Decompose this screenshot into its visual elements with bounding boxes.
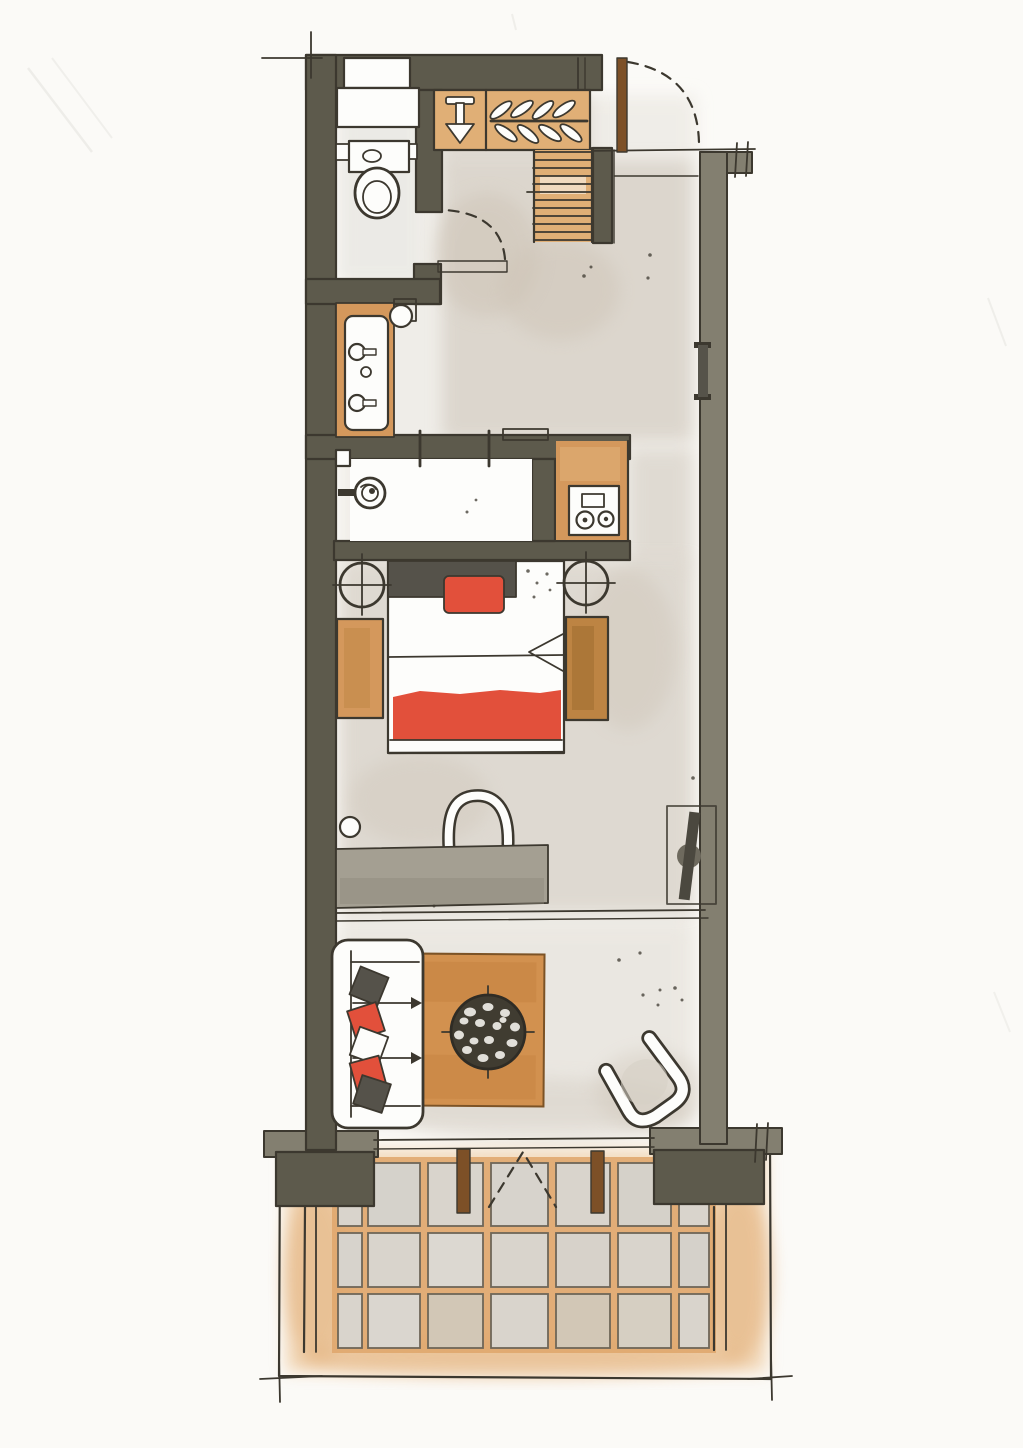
toilet-bowl [355,168,399,218]
shelf-unit [344,58,410,88]
terrace-side-wall-right [654,1150,764,1204]
wc-south-wall [306,279,440,304]
shower-control [336,450,350,466]
bedside-bench-right [566,617,608,720]
shower-east-wall [532,459,555,541]
stairs [527,148,592,242]
kitchenette [556,441,628,540]
red-pillow [444,576,504,613]
double-bed [388,561,564,753]
sofa [332,940,423,1128]
bedside-bench-left [337,619,383,718]
toilet-flush-button [363,150,381,162]
shelf-unit-lower [337,88,419,127]
wall-mirror [390,305,412,327]
right-wall [700,152,727,1144]
terrace-door-leaf [457,1149,470,1213]
terrace-door-leaf [591,1151,604,1213]
staircase [534,150,592,242]
red-blanket [393,690,561,740]
wall-lamp [340,817,360,837]
floor-plan-page [0,0,1023,1448]
terrace-door-lintel [374,1138,654,1140]
washbasin [345,316,388,430]
entry-door [617,58,627,152]
closet [434,90,590,150]
stair-side-wall [593,148,612,243]
terrace-side-wall-left [276,1152,374,1206]
floor-plan-drawing [0,0,1023,1448]
